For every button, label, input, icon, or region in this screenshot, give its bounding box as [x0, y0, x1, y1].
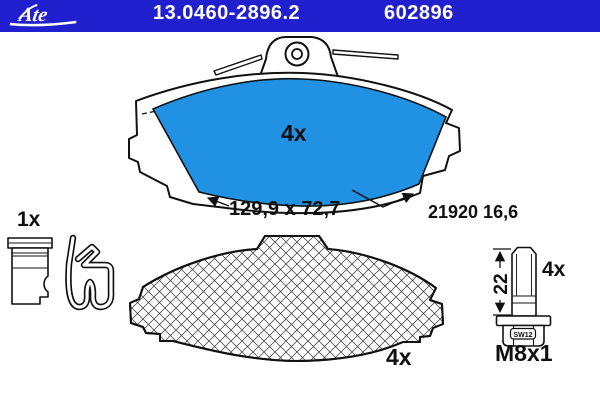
- sensor-wire-right: [333, 50, 398, 59]
- backplate-quantity-label: 4x: [386, 344, 412, 371]
- sensor-wire-left: [214, 55, 262, 75]
- friction-pad-quantity-label: 4x: [281, 120, 307, 147]
- bolt-flange: [497, 316, 551, 326]
- accessory-kit-drawing: [8, 238, 111, 307]
- bolt-quantity-label: 4x: [542, 258, 565, 282]
- wrench-size-label: SW12: [513, 332, 532, 339]
- pad-dimensions-label: 129,9 x 72,7: [229, 198, 340, 221]
- bolt-shaft: [512, 248, 536, 317]
- catalog-page: Ate 13.0460-2896.2 602896: [0, 0, 600, 400]
- bolt-thread-label: M8x1: [495, 340, 553, 367]
- sensor-hole-inner: [292, 49, 302, 59]
- backplate-crosshatch: [130, 236, 443, 361]
- accessory-kit-quantity-label: 1x: [17, 208, 40, 232]
- bolt-length-label: 22: [491, 273, 512, 294]
- wva-number-label: 21920 16,6: [428, 202, 518, 223]
- backplate-drawing: [130, 236, 443, 361]
